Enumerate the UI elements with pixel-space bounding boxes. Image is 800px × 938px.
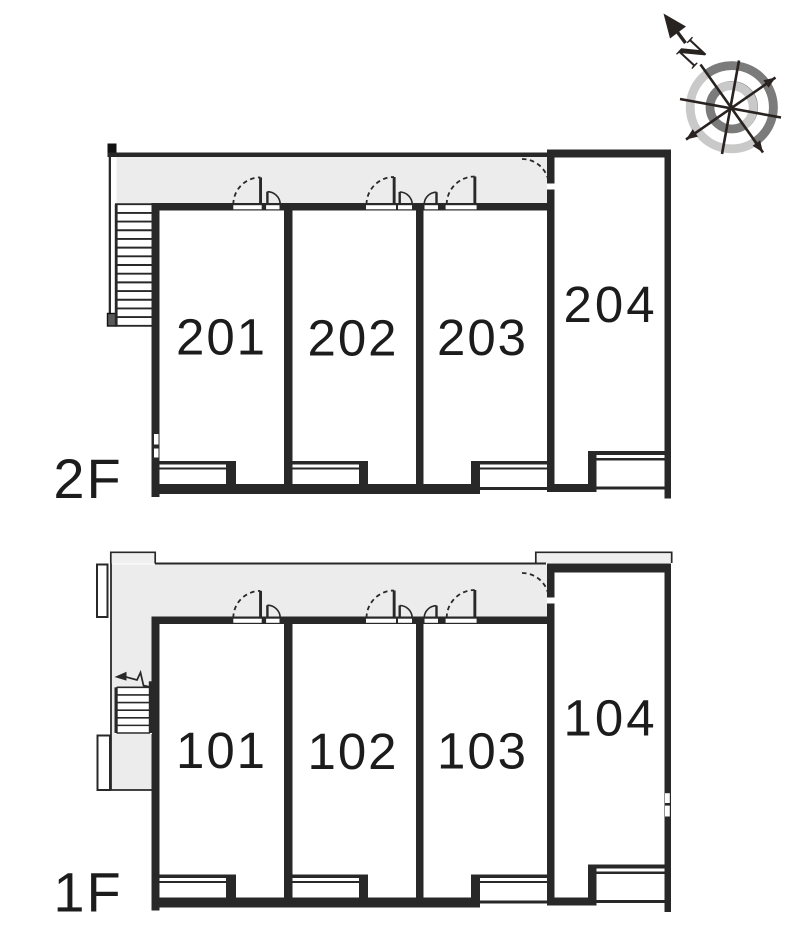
svg-text:1F: 1F [53,861,122,924]
svg-text:103: 103 [437,723,528,780]
svg-text:102: 102 [307,723,398,780]
svg-text:2F: 2F [53,447,122,510]
svg-text:101: 101 [176,722,267,779]
svg-text:204: 204 [564,276,658,333]
svg-text:202: 202 [307,310,398,367]
svg-text:203: 203 [437,309,528,366]
svg-text:104: 104 [564,690,658,747]
svg-text:201: 201 [176,309,267,366]
